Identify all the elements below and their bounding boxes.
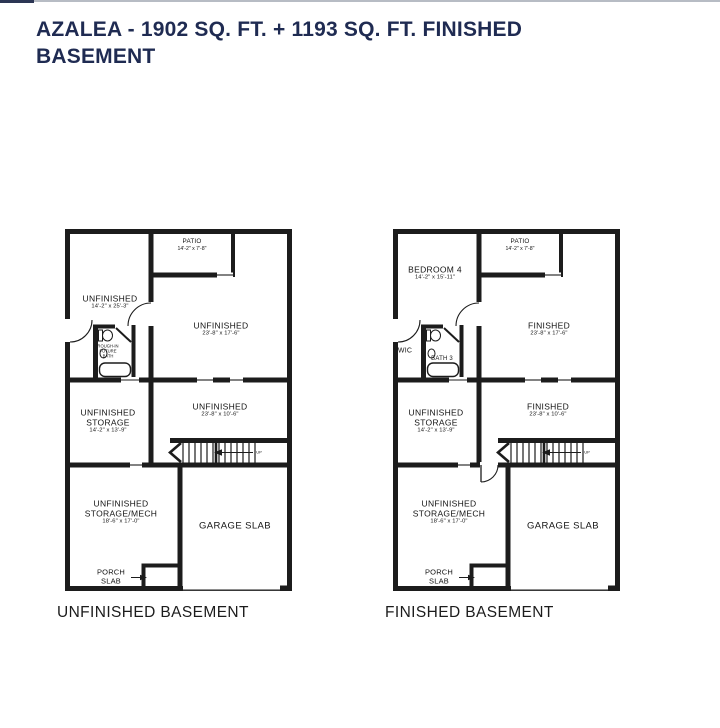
page-top-border <box>0 0 720 2</box>
page-title-line1: AZALEA - 1902 SQ. FT. + 1193 SQ. FT. FIN… <box>36 16 522 43</box>
door-leaf-bath <box>444 328 459 342</box>
room-label-finished-upper-right: FINISHED 23'-8" x 17'-6" <box>528 321 570 338</box>
toilet-bowl-icon <box>431 330 441 341</box>
room-label-storage-mech: UNFINISHED STORAGE/MECH 18'-6" x 17'-0" <box>413 499 485 526</box>
plan-caption-unfinished: UNFINISHED BASEMENT <box>57 604 249 622</box>
room-label-bath-3: BATH 3 <box>431 356 453 362</box>
page-top-border-accent <box>0 0 34 3</box>
stairs-icon <box>498 441 615 463</box>
room-label-unfinished-storage: UNFINISHED STORAGE 14'-2" x 13'-9" <box>409 408 464 435</box>
room-label-porch-slab: PORCH SLAB <box>425 569 453 586</box>
door-arcs <box>398 303 498 482</box>
door-leaf-bath <box>116 328 131 342</box>
stairs-icon <box>170 441 287 463</box>
page-title-line2: BASEMENT <box>36 43 522 70</box>
stairs-up-label: UP <box>584 450 590 455</box>
room-label-unfinished-storage: UNFINISHED STORAGE 14'-2" x 13'-9" <box>81 408 136 435</box>
toilet-icon <box>427 330 431 341</box>
room-label-garage-slab: GARAGE SLAB <box>527 521 599 532</box>
page-title: AZALEA - 1902 SQ. FT. + 1193 SQ. FT. FIN… <box>36 16 522 70</box>
bathtub-icon <box>100 363 131 377</box>
stairs-up-label: UP <box>256 450 262 455</box>
room-label-roughin-bath: ROUGH-IN FUTURE BATH <box>97 345 118 360</box>
room-label-patio: PATIO 14'-2" x 7'-8" <box>505 238 534 252</box>
door-arc-wic <box>398 320 420 342</box>
toilet-bowl-icon <box>103 330 113 341</box>
room-label-garage-slab: GARAGE SLAB <box>199 521 271 532</box>
room-label-unfinished-upper-right: UNFINISHED 23'-8" x 17'-6" <box>194 321 249 338</box>
floorplan-unfinished-basement: PATIO 14'-2" x 7'-8" UNFINISHED 14'-2" x… <box>57 225 297 600</box>
room-label-bedroom-4: BEDROOM 4 14'-2" x 15'-11" <box>408 265 462 282</box>
door-arc-closet <box>70 320 92 342</box>
toilet-icon <box>99 330 103 341</box>
bathtub-icon <box>428 363 459 377</box>
door-arc-bedroom <box>456 303 479 326</box>
room-label-unfinished-upper-left: UNFINISHED 14'-2" x 25'-3" <box>83 294 138 311</box>
plan-caption-finished: FINISHED BASEMENT <box>385 604 554 622</box>
room-label-porch-slab: PORCH SLAB <box>97 569 125 586</box>
room-label-unfinished-middle-right: UNFINISHED 23'-8" x 10'-6" <box>193 402 248 419</box>
room-label-storage-mech: UNFINISHED STORAGE/MECH 18'-6" x 17'-0" <box>85 499 157 526</box>
room-label-finished-middle-right: FINISHED 23'-8" x 10'-6" <box>527 402 569 419</box>
room-label-patio: PATIO 14'-2" x 7'-8" <box>177 238 206 252</box>
floorplan-finished-basement: PATIO 14'-2" x 7'-8" BEDROOM 4 14'-2" x … <box>385 225 625 600</box>
room-label-wic: WIC <box>398 348 412 355</box>
